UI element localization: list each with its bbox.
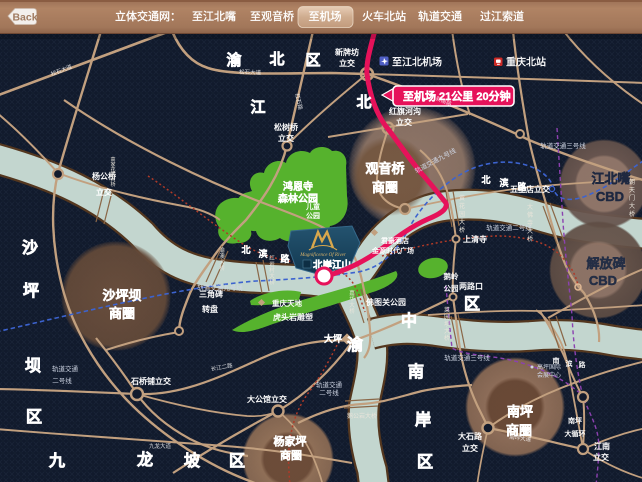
- svg-text:大: 大: [444, 327, 450, 335]
- svg-text:路: 路: [517, 181, 527, 192]
- svg-text:渝: 渝: [219, 246, 225, 254]
- svg-text:龙: 龙: [136, 450, 153, 469]
- svg-text:路: 路: [280, 253, 290, 264]
- svg-text:立交: 立交: [96, 187, 112, 197]
- svg-text:南坪: 南坪: [507, 404, 533, 419]
- svg-text:商圈: 商圈: [372, 180, 398, 195]
- svg-text:红: 红: [269, 254, 275, 262]
- svg-text:新牌坊: 新牌坊: [335, 47, 359, 57]
- svg-text:桥: 桥: [219, 264, 225, 272]
- svg-text:寺: 寺: [527, 219, 533, 227]
- svg-text:北: 北: [241, 244, 250, 255]
- svg-text:区: 区: [229, 452, 245, 470]
- svg-text:渝: 渝: [226, 51, 242, 69]
- svg-text:澳: 澳: [219, 252, 225, 260]
- svg-text:坪: 坪: [23, 282, 39, 300]
- svg-text:江南: 江南: [594, 441, 610, 451]
- svg-text:园: 园: [444, 314, 450, 321]
- svg-text:南坪: 南坪: [568, 416, 582, 425]
- svg-text:公园: 公园: [306, 212, 320, 220]
- svg-text:两路口: 两路口: [459, 281, 483, 291]
- svg-text:CBD: CBD: [589, 273, 617, 288]
- svg-text:君豪酒店: 君豪酒店: [381, 236, 409, 245]
- svg-text:立体交通网：: 立体交通网：: [115, 9, 181, 23]
- svg-text:区: 区: [464, 295, 480, 313]
- svg-text:上清寺: 上清寺: [463, 234, 487, 244]
- svg-text:园: 园: [459, 211, 465, 218]
- svg-text:大: 大: [459, 218, 465, 226]
- svg-text:江: 江: [250, 98, 265, 116]
- svg-text:桥: 桥: [459, 226, 465, 234]
- svg-text:鹅岭: 鹅岭: [444, 271, 459, 281]
- svg-text:坝: 坝: [25, 357, 41, 375]
- svg-text:天: 天: [629, 187, 635, 194]
- svg-text:区: 区: [305, 52, 320, 69]
- svg-text:五里店立交: 五里店立交: [510, 184, 550, 194]
- svg-text:二号线: 二号线: [319, 388, 339, 397]
- svg-text:公园: 公园: [444, 284, 459, 293]
- svg-text:黄: 黄: [459, 194, 465, 202]
- svg-text:二号线: 二号线: [52, 376, 72, 385]
- svg-text:桥: 桥: [349, 307, 355, 315]
- svg-text:桥: 桥: [629, 210, 635, 218]
- svg-text:岩: 岩: [269, 260, 275, 268]
- svg-text:九龙大道: 九龙大道: [149, 442, 172, 450]
- svg-text:朝: 朝: [629, 178, 635, 186]
- svg-text:轨道交通三号线: 轨道交通三号线: [540, 141, 586, 150]
- svg-text:轨道交通: 轨道交通: [418, 9, 462, 23]
- svg-text:南: 南: [553, 356, 560, 365]
- svg-text:轨道交通三号线: 轨道交通三号线: [444, 353, 490, 362]
- svg-text:会展中心: 会展中心: [537, 371, 561, 379]
- svg-text:至江北嘴: 至江北嘴: [192, 10, 236, 23]
- svg-text:立交: 立交: [396, 117, 412, 127]
- svg-text:立交: 立交: [278, 133, 294, 143]
- svg-text:至机场: 至机场: [309, 9, 342, 23]
- svg-text:轨道交通九号线: 轨道交通九号线: [197, 283, 243, 292]
- svg-text:沙: 沙: [22, 239, 38, 257]
- svg-text:儿童: 儿童: [306, 202, 320, 211]
- svg-text:重庆天地: 重庆天地: [272, 298, 302, 308]
- svg-text:大: 大: [527, 227, 533, 235]
- svg-text:滨: 滨: [258, 248, 267, 259]
- svg-text:桥: 桥: [110, 181, 115, 188]
- svg-text:CBD: CBD: [596, 189, 624, 204]
- svg-text:杨家坪: 杨家坪: [274, 434, 307, 448]
- svg-text:立交: 立交: [462, 443, 478, 453]
- svg-text:佛: 佛: [527, 211, 533, 219]
- svg-text:岸: 岸: [415, 410, 431, 429]
- svg-text:火车北站: 火车北站: [362, 9, 406, 23]
- svg-text:南: 南: [408, 362, 424, 381]
- svg-text:大: 大: [527, 203, 533, 211]
- svg-text:大公馆立交: 大公馆立交: [247, 394, 287, 404]
- svg-text:大石路: 大石路: [458, 431, 482, 441]
- svg-text:大: 大: [219, 258, 225, 266]
- svg-text:佛图关公园: 佛图关公园: [366, 297, 406, 307]
- svg-text:区: 区: [417, 453, 433, 471]
- svg-text:华: 华: [349, 295, 355, 303]
- svg-text:至机场 21公里 20分钟: 至机场 21公里 20分钟: [403, 89, 511, 103]
- svg-text:金源时代广场: 金源时代广场: [372, 246, 414, 255]
- svg-text:松树桥: 松树桥: [274, 122, 298, 132]
- svg-text:红旗河沟: 红旗河沟: [389, 106, 421, 116]
- svg-text:石桥铺立交: 石桥铺立交: [131, 376, 171, 386]
- svg-text:门: 门: [629, 194, 635, 202]
- svg-text:桥: 桥: [527, 235, 533, 243]
- svg-text:大: 大: [269, 272, 275, 280]
- svg-text:鹅公岩大桥: 鹅公岩大桥: [347, 412, 377, 420]
- svg-text:转盘: 转盘: [202, 304, 218, 314]
- svg-text:商圈: 商圈: [280, 448, 302, 462]
- svg-text:轨道交通: 轨道交通: [316, 380, 343, 389]
- svg-text:至观音桥: 至观音桥: [250, 9, 294, 23]
- svg-text:桥: 桥: [269, 278, 275, 286]
- svg-text:北: 北: [356, 94, 371, 111]
- svg-text:北: 北: [481, 174, 490, 185]
- svg-text:大: 大: [349, 301, 355, 309]
- svg-text:中: 中: [401, 311, 417, 330]
- svg-text:立交: 立交: [593, 452, 609, 462]
- svg-text:九: 九: [48, 452, 65, 470]
- svg-text:至江北机场: 至江北机场: [392, 56, 442, 69]
- svg-text:高坪国际: 高坪国际: [537, 363, 561, 371]
- svg-text:鸿恩寺: 鸿恩寺: [283, 180, 313, 193]
- svg-text:江北嘴: 江北嘴: [591, 171, 630, 186]
- svg-text:花: 花: [459, 202, 465, 210]
- svg-text:滨: 滨: [499, 177, 508, 188]
- svg-text:菜: 菜: [444, 306, 450, 314]
- svg-text:商圈: 商圈: [109, 306, 135, 321]
- svg-text:大循环: 大循环: [565, 429, 586, 438]
- svg-text:Back: Back: [12, 12, 37, 24]
- svg-text:沙坪坝: 沙坪坝: [102, 288, 141, 303]
- svg-text:虎头岩雕塑: 虎头岩雕塑: [273, 312, 313, 322]
- svg-text:嘉: 嘉: [349, 289, 355, 297]
- svg-text:过江索道: 过江索道: [480, 9, 524, 23]
- svg-text:Magnificence Of River: Magnificence Of River: [299, 253, 346, 258]
- svg-text:区: 区: [26, 408, 42, 426]
- svg-text:村: 村: [269, 266, 275, 274]
- svg-text:路: 路: [579, 360, 586, 369]
- svg-text:坝: 坝: [444, 320, 450, 328]
- svg-text:大: 大: [629, 202, 635, 210]
- svg-text:解放碑: 解放碑: [585, 256, 625, 271]
- svg-text:立交: 立交: [339, 58, 355, 68]
- svg-text:渝: 渝: [347, 335, 364, 354]
- svg-text:大坪: 大坪: [324, 333, 342, 344]
- svg-text:坡: 坡: [184, 451, 201, 470]
- svg-text:滨: 滨: [566, 359, 573, 368]
- svg-text:北: 北: [269, 51, 284, 68]
- svg-text:重庆北站: 重庆北站: [506, 56, 546, 69]
- svg-text:观音桥: 观音桥: [365, 161, 405, 176]
- svg-text:桥: 桥: [444, 334, 450, 342]
- svg-text:轨道交通: 轨道交通: [52, 364, 79, 373]
- svg-text:轨道交通二号线: 轨道交通二号线: [486, 223, 532, 232]
